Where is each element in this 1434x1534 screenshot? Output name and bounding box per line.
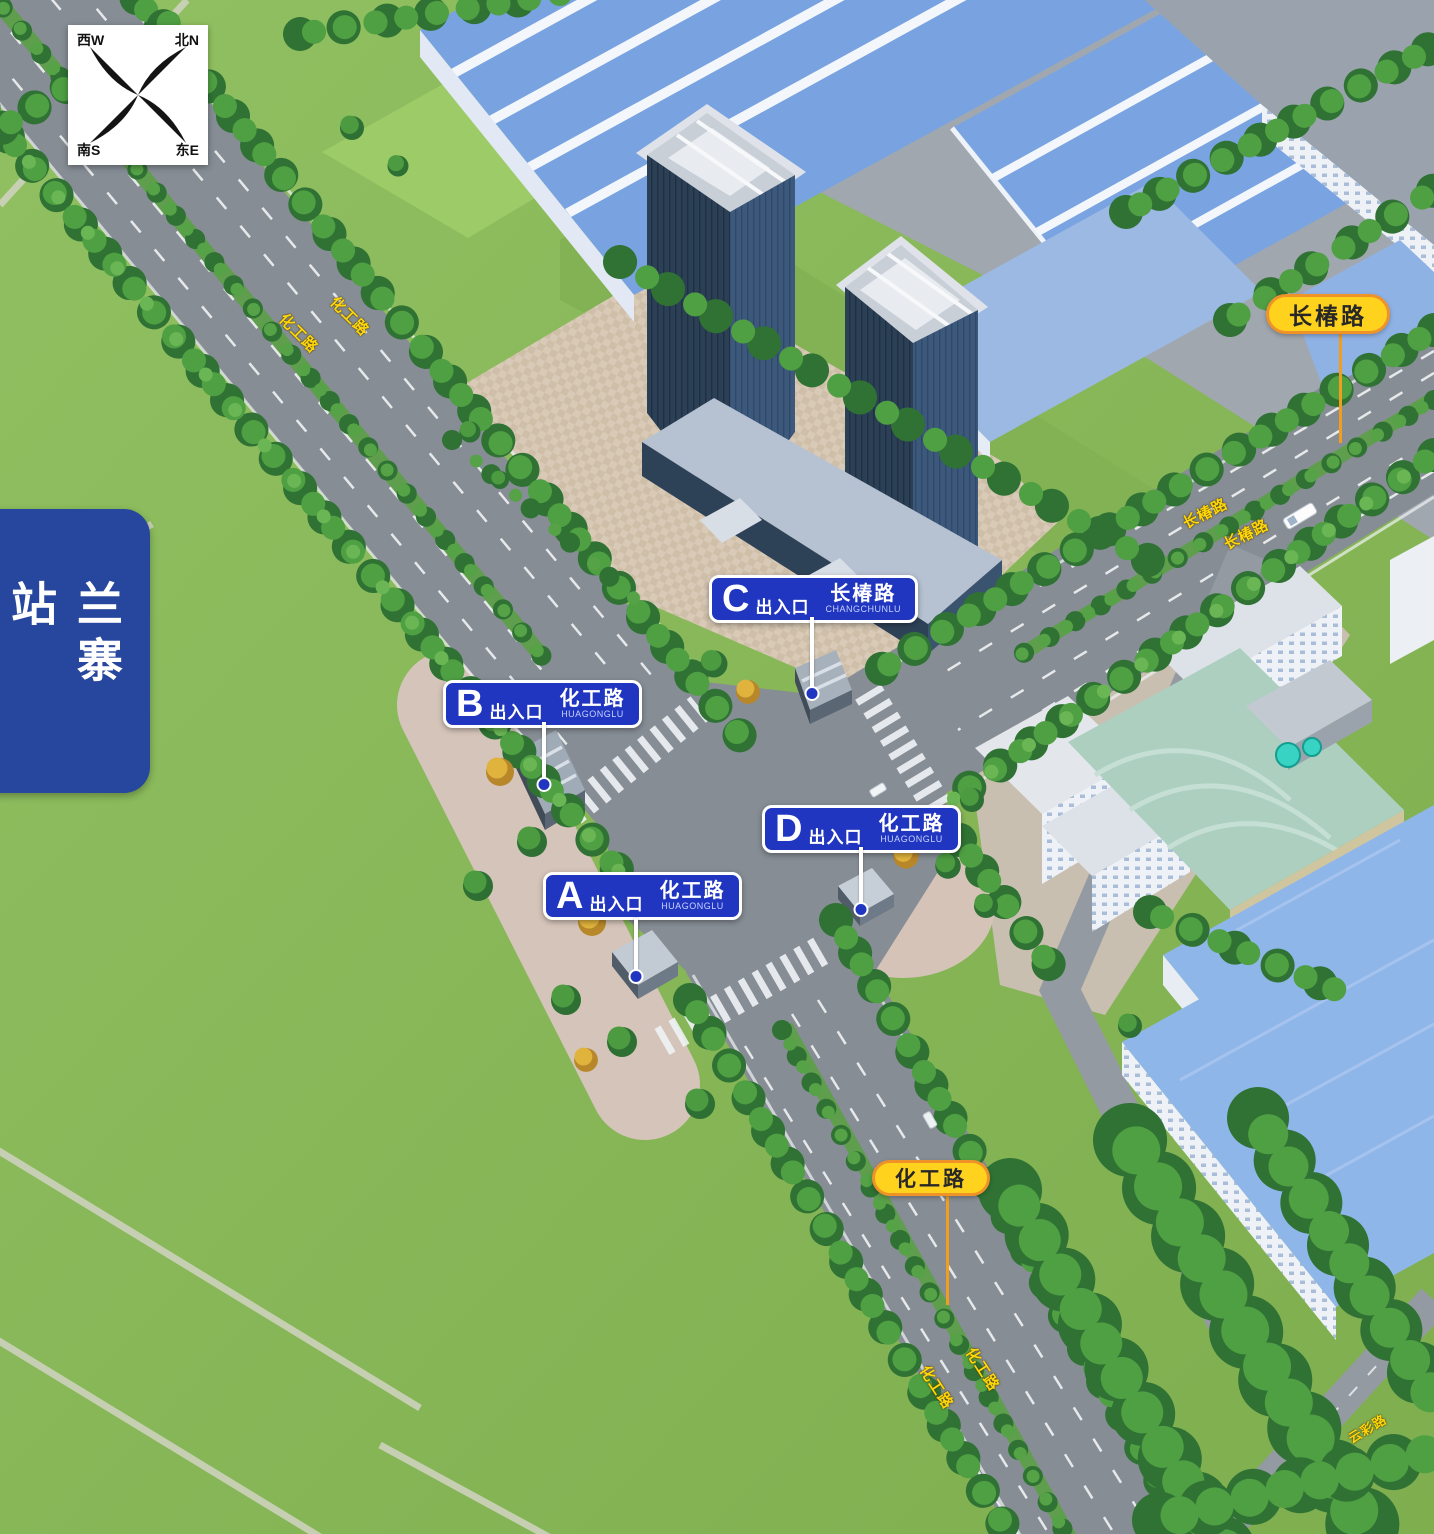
exit-c-gate-label: 出入口 — [755, 593, 809, 618]
exit-d-letter: D — [775, 810, 802, 848]
compass-north-label: 北N — [175, 33, 199, 47]
changchunlu-road-callout: 长椿路 — [1266, 294, 1390, 334]
exit-b-letter: B — [456, 685, 483, 723]
map-scene — [0, 0, 1434, 1534]
exit-d-gate-label: 出入口 — [808, 823, 862, 848]
compass-rose: 西W 北N 南S 东E — [68, 25, 208, 165]
compass-south-label: 南S — [77, 143, 100, 157]
exit-c-pointer — [810, 617, 814, 689]
station-name-plate: 兰寨站 — [0, 509, 150, 793]
exit-a-location-dot — [629, 969, 644, 984]
exit-c-sign: C 出入口 长椿路 CHANGCHUNLU — [709, 575, 918, 623]
compass-east-label: 东E — [176, 143, 199, 157]
exit-b-sign: B 出入口 化工路 HUAGONGLU — [443, 680, 642, 728]
changchunlu-callout-line — [1339, 333, 1342, 443]
exit-d-location-dot — [854, 902, 869, 917]
exit-b-road-pinyin: HUAGONGLU — [561, 710, 624, 720]
exit-d-road-pinyin: HUAGONGLU — [880, 835, 943, 845]
exit-a-gate-label: 出入口 — [589, 890, 643, 915]
exit-b-road-name: 化工路 — [559, 688, 625, 710]
station-area-map: 西W 北N 南S 东E 兰寨站 A 出入口 化工路 HUAGONGLU B 出入… — [0, 0, 1434, 1534]
exit-b-gate-label: 出入口 — [489, 698, 543, 723]
exit-b-pointer — [542, 722, 546, 780]
exit-c-road-name: 长椿路 — [830, 583, 896, 605]
exit-a-sign: A 出入口 化工路 HUAGONGLU — [543, 872, 742, 920]
exit-d-sign: D 出入口 化工路 HUAGONGLU — [762, 805, 961, 853]
exit-a-road-pinyin: HUAGONGLU — [661, 902, 724, 912]
exit-c-road-pinyin: CHANGCHUNLU — [825, 605, 901, 615]
compass-west-label: 西W — [77, 33, 104, 47]
exit-a-pointer — [634, 918, 638, 972]
exit-c-location-dot — [805, 686, 820, 701]
exit-d-pointer — [859, 847, 863, 905]
exit-c-letter: C — [722, 580, 749, 618]
exit-d-road-name: 化工路 — [878, 813, 944, 835]
station-name: 兰寨站 — [0, 580, 130, 722]
huagonglu-road-callout: 化工路 — [872, 1160, 990, 1196]
exit-a-letter: A — [556, 877, 583, 915]
huagonglu-callout-line — [946, 1195, 949, 1305]
exit-a-road-name: 化工路 — [659, 880, 725, 902]
exit-b-location-dot — [537, 777, 552, 792]
